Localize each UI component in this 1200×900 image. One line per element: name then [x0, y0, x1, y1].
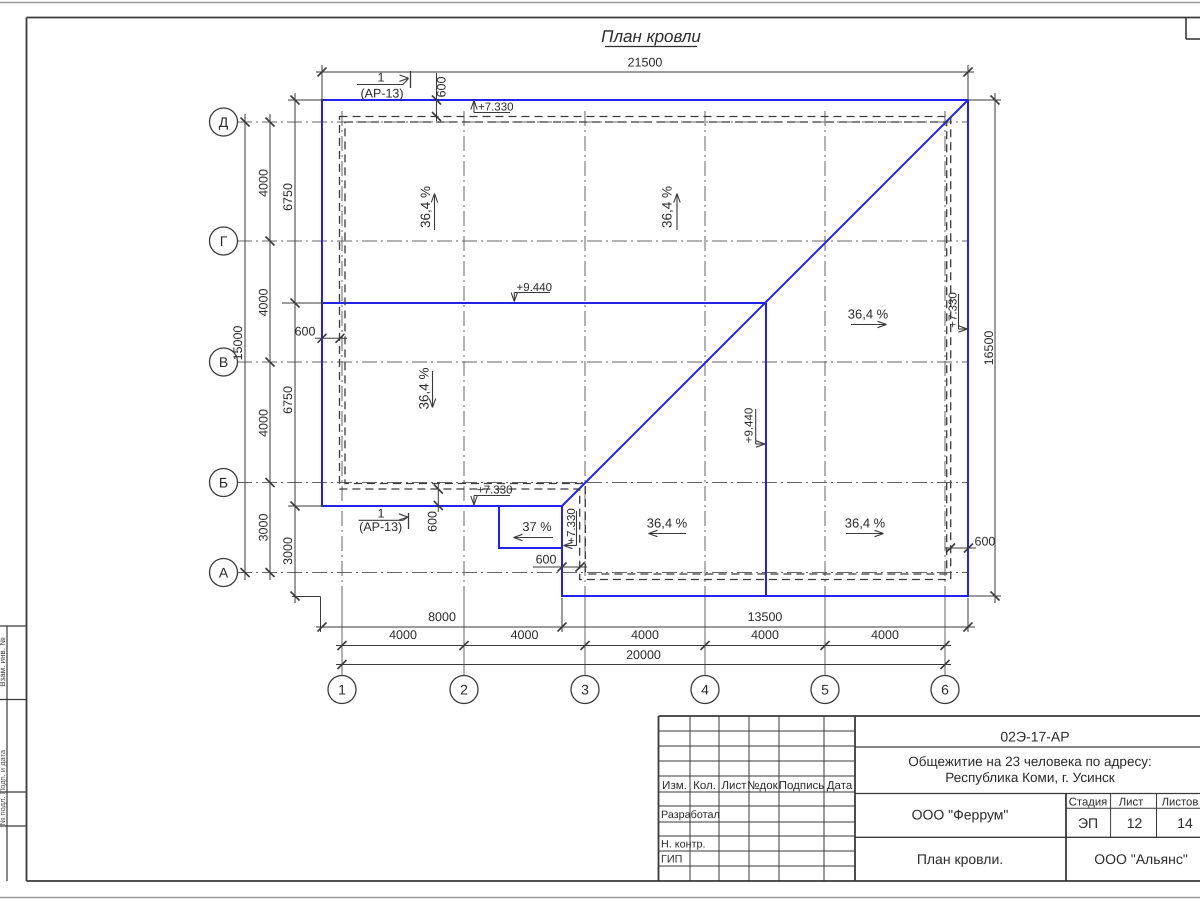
svg-text:3000: 3000	[281, 537, 295, 565]
svg-text:37 %: 37 %	[522, 519, 551, 534]
svg-text:4000: 4000	[257, 169, 271, 197]
svg-text:4000: 4000	[511, 628, 539, 642]
svg-text:+7.330: +7.330	[948, 292, 960, 328]
svg-text:3000: 3000	[257, 514, 271, 542]
svg-text:1: 1	[378, 507, 385, 521]
svg-text:4000: 4000	[751, 628, 779, 642]
svg-text:6750: 6750	[281, 183, 295, 211]
svg-text:13500: 13500	[748, 610, 783, 624]
svg-text:ООО "Альянс": ООО "Альянс"	[1094, 851, 1188, 867]
svg-text:Б: Б	[219, 475, 228, 491]
svg-text:4000: 4000	[871, 628, 899, 642]
svg-text:2: 2	[460, 682, 468, 698]
svg-text:План кровли.: План кровли.	[917, 851, 1003, 867]
svg-text:План кровли: План кровли	[601, 27, 701, 46]
svg-text:+7.330: +7.330	[478, 102, 514, 114]
svg-text:Общежитие на 23 человека по ад: Общежитие на 23 человека по адресу:	[908, 754, 1151, 769]
svg-text:5: 5	[821, 682, 829, 698]
svg-text:3: 3	[581, 682, 589, 698]
svg-text:Кол.: Кол.	[693, 780, 716, 792]
svg-text:№ подл.: № подл.	[0, 796, 7, 825]
svg-text:4000: 4000	[257, 409, 271, 437]
svg-text:21500: 21500	[628, 56, 663, 70]
svg-text:36,4 %: 36,4 %	[848, 307, 889, 322]
svg-text:(АР-13): (АР-13)	[360, 87, 403, 101]
svg-text:Республика Коми, г. Усинск: Республика Коми, г. Усинск	[945, 770, 1115, 785]
svg-text:ГИП: ГИП	[661, 854, 682, 866]
svg-text:№док.: №док.	[747, 780, 781, 792]
svg-text:Листов: Листов	[1162, 797, 1199, 809]
svg-text:36,4 %: 36,4 %	[845, 516, 886, 531]
svg-text:В: В	[219, 354, 228, 370]
svg-text:Стадия: Стадия	[1069, 797, 1108, 809]
svg-text:Взам. инв. №: Взам. инв. №	[0, 637, 7, 687]
svg-text:4000: 4000	[257, 289, 271, 317]
svg-text:6: 6	[941, 682, 949, 698]
svg-text:(АР-13): (АР-13)	[359, 520, 402, 534]
svg-text:14: 14	[1177, 815, 1193, 831]
svg-text:Подпись: Подпись	[779, 780, 825, 792]
svg-text:+9.440: +9.440	[517, 282, 553, 294]
svg-text:Лист: Лист	[722, 780, 748, 792]
svg-text:600: 600	[536, 553, 557, 567]
svg-text:Лист: Лист	[1119, 797, 1144, 809]
svg-text:4000: 4000	[389, 628, 417, 642]
svg-text:4000: 4000	[631, 628, 659, 642]
svg-text:+7.330: +7.330	[566, 508, 578, 544]
svg-text:Н. контр.: Н. контр.	[661, 839, 706, 851]
svg-text:Г: Г	[220, 233, 228, 249]
svg-text:36,4 %: 36,4 %	[647, 516, 688, 531]
svg-text:Дата: Дата	[827, 780, 853, 792]
svg-text:20000: 20000	[626, 648, 661, 662]
svg-text:600: 600	[975, 535, 996, 549]
svg-text:36,4 %: 36,4 %	[660, 186, 675, 228]
svg-text:02Э-17-АР: 02Э-17-АР	[1000, 729, 1069, 745]
svg-text:+9.440: +9.440	[744, 408, 756, 444]
svg-text:1: 1	[378, 71, 385, 85]
svg-text:Подп. и дата: Подп. и дата	[0, 749, 7, 794]
svg-text:+7.330: +7.330	[477, 485, 513, 497]
svg-text:ООО "Феррум": ООО "Феррум"	[912, 807, 1009, 823]
svg-text:Изм.: Изм.	[662, 780, 687, 792]
svg-text:600: 600	[426, 511, 440, 532]
svg-text:А: А	[219, 565, 229, 581]
svg-text:4: 4	[701, 682, 709, 698]
svg-text:Д: Д	[219, 114, 229, 130]
svg-text:Разработал: Разработал	[661, 809, 720, 821]
svg-text:16500: 16500	[982, 331, 996, 366]
svg-text:12: 12	[1127, 815, 1143, 831]
svg-text:36,4 %: 36,4 %	[417, 367, 432, 409]
svg-text:1: 1	[338, 682, 346, 698]
svg-text:600: 600	[295, 325, 316, 339]
svg-text:ЭП: ЭП	[1078, 815, 1098, 831]
svg-text:6750: 6750	[281, 386, 295, 414]
svg-text:15000: 15000	[231, 326, 245, 361]
svg-text:600: 600	[435, 77, 449, 98]
svg-text:36,4 %: 36,4 %	[418, 186, 433, 228]
svg-text:8000: 8000	[428, 610, 456, 624]
